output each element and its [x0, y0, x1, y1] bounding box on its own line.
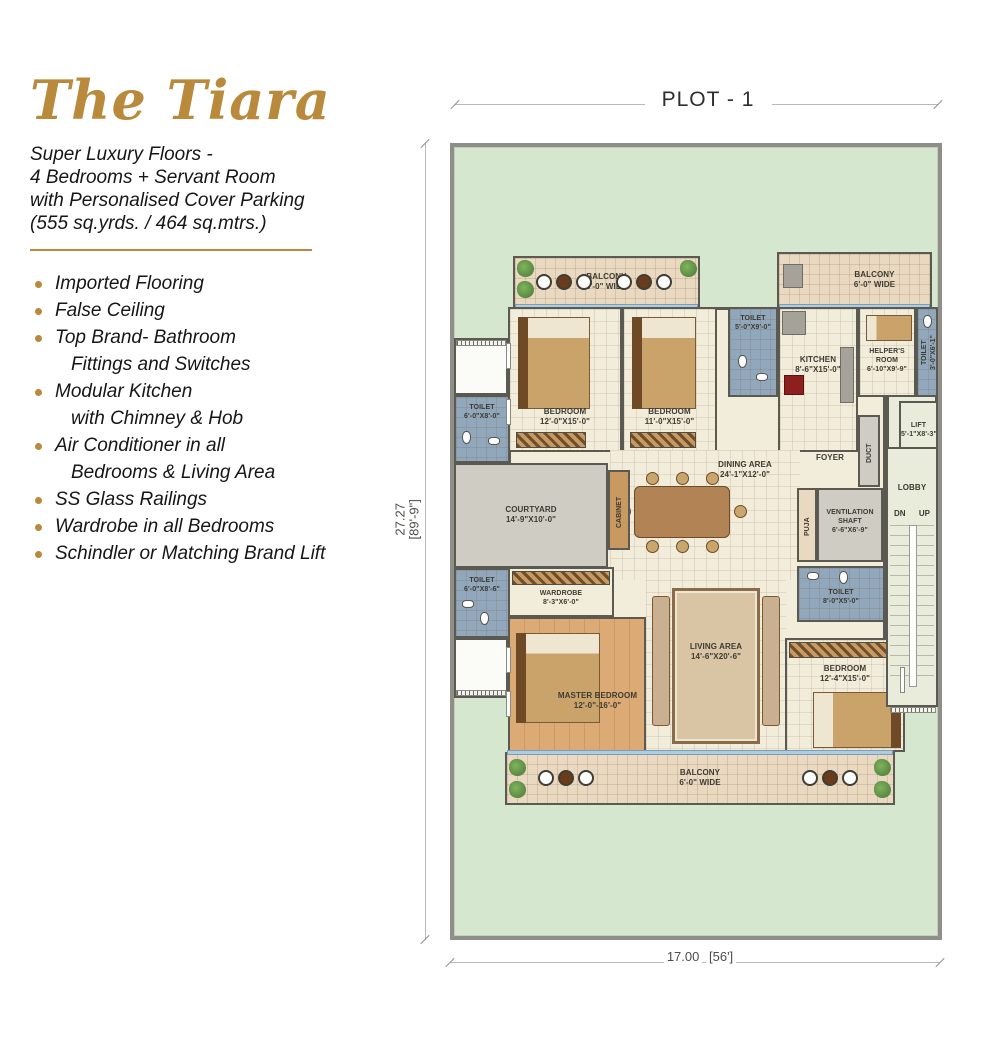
dim-height-m: 27.27: [394, 471, 408, 567]
wardrobe-hatch: [789, 642, 901, 658]
chair-icon: [538, 770, 554, 786]
toilet-left-upper: TOILET 6'-0"X8'-0": [454, 395, 510, 463]
wardrobe-room: WARDROBE 8'-3"X6'-0": [508, 567, 614, 617]
bullet-icon: [35, 497, 42, 504]
subtitle-line: (555 sq.yrds. / 464 sq.mtrs.): [30, 212, 370, 235]
window: [506, 691, 511, 717]
dim-line-left: [425, 143, 426, 940]
info-panel: The Tiara Super Luxury Floors - 4 Bedroo…: [30, 72, 370, 568]
room-name: LIFT: [911, 422, 926, 429]
brand-title: The Tiara: [30, 72, 370, 129]
balcony-seating: [536, 273, 592, 291]
room-dims: 6'-6"X6'-9": [819, 526, 881, 535]
helpers-room: HELPER'S ROOM 6'-10"X9'-9": [858, 307, 916, 397]
dim-line-top-left: [455, 104, 645, 105]
room-name: FOYER: [816, 453, 844, 462]
lobby: LOBBY DN UP: [886, 447, 938, 707]
room-name: LOBBY: [898, 483, 927, 492]
toilet-helpers: TOILET 3'-0"X6'-1": [916, 307, 938, 397]
chair: [676, 540, 689, 553]
room-name: BEDROOM: [544, 407, 586, 416]
table-icon: [636, 274, 652, 290]
room-dims: 8'-0"X5'-0": [799, 597, 883, 606]
window: [900, 667, 905, 693]
feature-list: Imported Flooring False Ceiling Top Bran…: [30, 271, 370, 568]
living-area: LIVING AREA 14'-6"X20'-6": [646, 580, 786, 752]
bed: [866, 315, 912, 341]
bullet-icon: [35, 308, 42, 315]
ledge-top-left: [454, 338, 508, 395]
room-name: WARDROBE: [540, 590, 582, 597]
table-icon: [822, 770, 838, 786]
bullet-icon: [35, 443, 42, 450]
room-dims: 12'-0"-16'-0": [550, 701, 645, 711]
room-name: DINING AREA: [718, 460, 772, 469]
courtyard: COURTYARD 14'-9"X10'-0": [454, 463, 608, 568]
feature-text: Modular Kitchen: [55, 381, 192, 402]
room-dims: 5'-1"X8'-3": [901, 430, 936, 439]
sink-fixture: [807, 572, 819, 580]
feature-text: Air Conditioner in all: [55, 435, 225, 456]
room-name: MASTER BEDROOM: [558, 691, 637, 700]
feature-text: with Chimney & Hob: [71, 406, 370, 433]
chair: [646, 472, 659, 485]
room-name: CABINET: [615, 478, 624, 546]
chair-icon: [578, 770, 594, 786]
plant-icon: [517, 281, 534, 298]
bed-headboard: [632, 317, 642, 409]
plant-icon: [517, 260, 534, 277]
feature-text: False Ceiling: [55, 300, 165, 321]
room-name: BEDROOM: [648, 407, 690, 416]
stairs-dn-label: DN: [894, 509, 906, 518]
bedroom-2: BEDROOM 11'-0"X15'-0": [622, 307, 717, 452]
subtitle: Super Luxury Floors - 4 Bedrooms + Serva…: [30, 143, 370, 236]
room-name: TOILET: [828, 589, 853, 596]
sink-fixture: [488, 437, 500, 445]
bed: [518, 317, 590, 409]
room-dims: 6'-0" WIDE: [799, 280, 950, 290]
room-name: HELPER'S ROOM: [869, 348, 905, 364]
chair: [676, 472, 689, 485]
plant-icon: [874, 759, 891, 776]
subtitle-line: with Personalised Cover Parking: [30, 189, 370, 212]
room-dims: 14'-9"X10'-0": [456, 515, 606, 525]
brochure-page: The Tiara Super Luxury Floors - 4 Bedroo…: [0, 0, 1000, 1058]
stairs-up-label: UP: [919, 509, 930, 518]
room-name: KITCHEN: [800, 355, 836, 364]
room-dims: 12'-0"X15'-0": [510, 417, 620, 427]
dim-width-ft: [56']: [706, 950, 736, 964]
toilet-top: TOILET 5'-0"X9'-0": [728, 307, 778, 397]
room-name: BALCONY: [854, 270, 894, 279]
wc-fixture: [923, 315, 932, 328]
sill-hatch: [456, 690, 506, 696]
room-name: PUJA: [803, 496, 812, 558]
staircase: [890, 525, 934, 685]
subtitle-line: Super Luxury Floors -: [30, 143, 370, 166]
wardrobe-hatch: [630, 432, 696, 448]
feature-item: Wardrobe in all Bedrooms: [30, 514, 370, 541]
feature-text: Imported Flooring: [55, 273, 204, 294]
dining-area: DINING AREA 24'-1"X12'-0": [610, 450, 800, 580]
table-icon: [558, 770, 574, 786]
plant-icon: [874, 781, 891, 798]
feature-text: Top Brand- Bathroom: [55, 327, 236, 348]
chair-icon: [616, 274, 632, 290]
room-dims: 6'-0"X8'-6": [456, 585, 508, 594]
bullet-icon: [35, 281, 42, 288]
room-name: TOILET: [469, 404, 494, 411]
room-dims: 6'-10"X9'-9": [860, 365, 914, 374]
chair: [734, 505, 747, 518]
feature-item: SS Glass Railings: [30, 487, 370, 514]
subtitle-line: 4 Bedrooms + Servant Room: [30, 166, 370, 189]
sill-hatch: [890, 707, 936, 713]
feature-item: Imported Flooring: [30, 271, 370, 298]
plot-boundary: BALCONY 6'-0" WIDE BALCONY 6'-0" WIDE TO…: [450, 143, 942, 940]
master-bedroom: MASTER BEDROOM 12'-0"-16'-0": [508, 617, 646, 752]
feature-item: Modular Kitchenwith Chimney & Hob: [30, 379, 370, 433]
window-band: [507, 750, 893, 755]
room-name: BALCONY: [680, 768, 720, 777]
bedroom-1: BEDROOM 12'-0"X15'-0": [508, 307, 622, 452]
window: [506, 399, 511, 425]
room-name: BEDROOM: [824, 664, 866, 673]
plant-icon: [680, 260, 697, 277]
feature-text: Schindler or Matching Brand Lift: [55, 543, 325, 564]
cabinet: CABINET: [608, 470, 630, 550]
stove: [784, 375, 804, 395]
wc-fixture: [480, 612, 489, 625]
kitchen: KITCHEN 8'-6"X15'-0": [778, 307, 858, 452]
dim-width-m: 17.00: [664, 950, 703, 964]
room-dims: 5'-0"X9'-0": [730, 323, 776, 332]
feature-item: False Ceiling: [30, 298, 370, 325]
wardrobe-hatch: [516, 432, 586, 448]
bed-headboard: [516, 633, 526, 723]
plant-icon: [509, 781, 526, 798]
bullet-icon: [35, 524, 42, 531]
window: [506, 647, 511, 673]
window: [506, 343, 511, 369]
room-dims: 6'-0"X8'-0": [456, 412, 508, 421]
sink-fixture: [462, 600, 474, 608]
bed-headboard: [518, 317, 528, 409]
chair-icon: [802, 770, 818, 786]
planter-box: [783, 264, 803, 288]
feature-item: Air Conditioner in allBedrooms & Living …: [30, 433, 370, 487]
duct: DUCT: [858, 415, 880, 487]
toilet-right: TOILET 8'-0"X5'-0": [797, 566, 885, 622]
dining-table: [634, 486, 730, 538]
balcony-top-right: BALCONY 6'-0" WIDE: [777, 252, 932, 309]
chair: [706, 540, 719, 553]
wc-fixture: [738, 355, 747, 368]
table-icon: [556, 274, 572, 290]
room-dims: 8'-6"X15'-0": [780, 365, 856, 375]
feature-item: Schindler or Matching Brand Lift: [30, 541, 370, 568]
dim-width: 17.00 [56']: [645, 950, 755, 964]
chair: [706, 472, 719, 485]
kitchen-counter: [782, 311, 806, 335]
dim-height: 27.27 [89'-9"]: [394, 471, 423, 567]
feature-item: Top Brand- BathroomFittings and Switches: [30, 325, 370, 379]
chair-icon: [656, 274, 672, 290]
wardrobe-hatch: [512, 571, 610, 585]
balcony-seating: [802, 769, 858, 787]
ventilation-shaft: VENTILATION SHAFT 6'-6"X6'-9": [817, 488, 883, 562]
balcony-seating: [538, 769, 594, 787]
puja: PUJA: [797, 488, 817, 562]
room-dims: 14'-6"X20'-6": [666, 652, 766, 662]
plot-label: PLOT - 1: [648, 88, 768, 112]
room-name: TOILET: [740, 315, 765, 322]
feature-text: Fittings and Switches: [71, 352, 370, 379]
ledge-bottom-left: [454, 638, 508, 698]
sink-fixture: [756, 373, 768, 381]
chair-icon: [576, 274, 592, 290]
wc-fixture: [839, 571, 848, 584]
rug: [672, 588, 760, 744]
room-name: VENTILATION SHAFT: [826, 509, 873, 525]
dim-height-ft: [89'-9"]: [408, 471, 422, 567]
room-name: TOILET: [469, 577, 494, 584]
wc-fixture: [462, 431, 471, 444]
chair-icon: [536, 274, 552, 290]
room-dims: 11'-0"X15'-0": [624, 417, 715, 427]
dim-line-top-right: [772, 104, 938, 105]
foyer-label: FOYER: [800, 453, 860, 463]
plant-icon: [509, 759, 526, 776]
balcony-seating: [616, 273, 672, 291]
chair-icon: [842, 770, 858, 786]
feature-text: Wardrobe in all Bedrooms: [55, 516, 274, 537]
room-name: COURTYARD: [505, 505, 556, 514]
room-name: DUCT: [865, 423, 874, 483]
feature-text: SS Glass Railings: [55, 489, 207, 510]
divider: [30, 249, 312, 251]
room-name: LIVING AREA: [690, 642, 742, 651]
feature-text: Bedrooms & Living Area: [71, 460, 370, 487]
bullet-icon: [35, 389, 42, 396]
bullet-icon: [35, 551, 42, 558]
chair: [646, 540, 659, 553]
bullet-icon: [35, 335, 42, 342]
sill-hatch: [456, 340, 506, 346]
toilet-left-lower: TOILET 6'-0"X8'-6": [454, 568, 510, 638]
room-dims: 8'-3"X6'-0": [510, 598, 612, 607]
